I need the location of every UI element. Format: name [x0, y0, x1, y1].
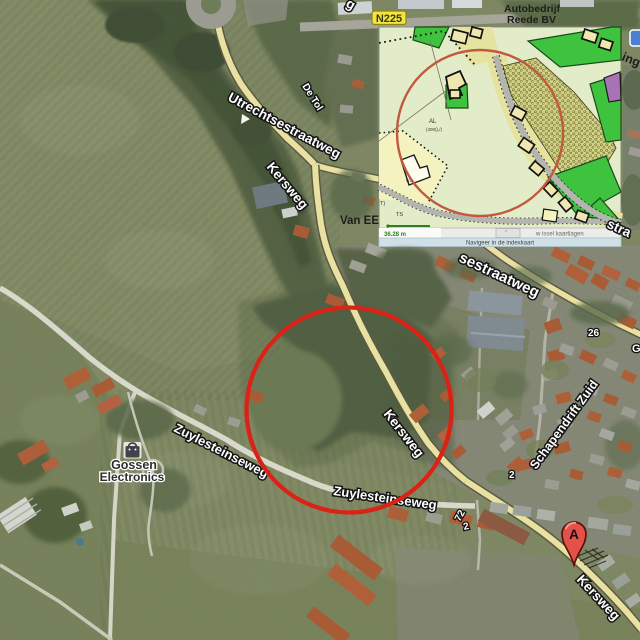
- svg-text:36.28 m: 36.28 m: [384, 232, 406, 238]
- svg-text:T): T): [380, 201, 385, 207]
- svg-text:AL: AL: [429, 119, 437, 125]
- svg-text:2: 2: [509, 470, 515, 481]
- svg-text:26: 26: [588, 328, 600, 339]
- svg-text:ˆ: ˆ: [505, 232, 507, 238]
- svg-text:G: G: [632, 343, 640, 355]
- svg-text:N225: N225: [376, 13, 402, 25]
- svg-text:A: A: [569, 527, 579, 542]
- svg-text:w issel kaartlagen: w issel kaartlagen: [535, 232, 584, 238]
- svg-text:TS: TS: [396, 212, 403, 218]
- svg-text:Van EE: Van EE: [340, 215, 379, 227]
- svg-text:Reede BV: Reede BV: [507, 14, 556, 26]
- svg-text:Navigeer in de indexkaart: Navigeer in de indexkaart: [466, 241, 534, 247]
- svg-text:(400(),/): (400(),/): [426, 127, 443, 132]
- svg-text:Electronics: Electronics: [100, 470, 165, 484]
